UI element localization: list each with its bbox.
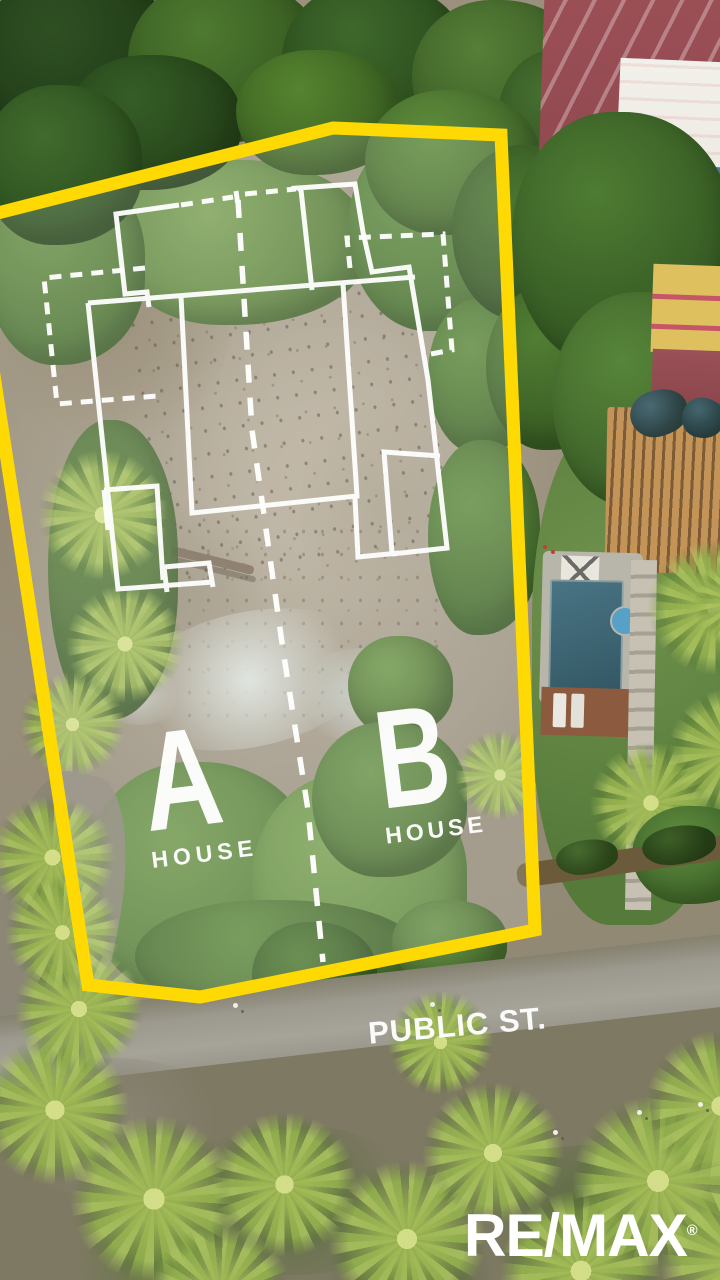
lot-a-letter: A [135, 719, 231, 838]
lot-a-label: A HOUSE [135, 716, 259, 874]
registered-trademark-symbol: ® [687, 1222, 698, 1239]
lot-b-letter: B [370, 698, 456, 815]
aerial-lot-photo: A HOUSE B HOUSE PUBLIC ST. RE/MAX® [0, 0, 720, 1280]
lot-overlay-graphics [0, 0, 720, 1280]
lot-b-label: B HOUSE [370, 694, 489, 850]
remax-wordmark: RE/MAX [464, 1202, 687, 1269]
remax-logo: RE/MAX® [464, 1206, 698, 1266]
lot-boundary [0, 128, 535, 997]
